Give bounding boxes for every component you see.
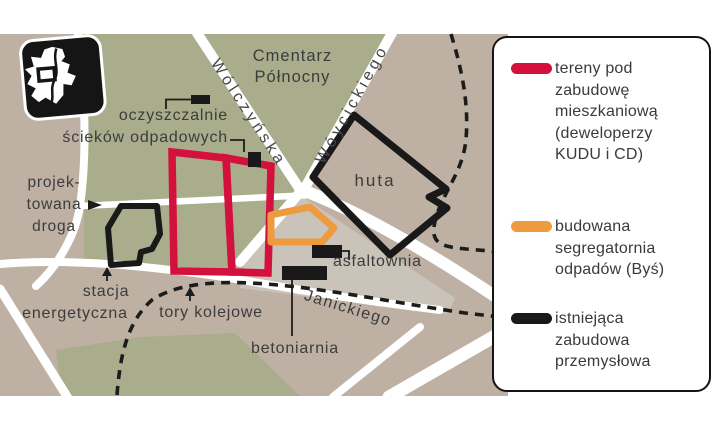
legend-text-waste-sorting: budowana segregatornia odpadów (Byś) — [555, 216, 664, 281]
legend-line: (deweloperzy — [555, 123, 658, 145]
legend-panel: tereny pod zabudowę mieszkaniową (dewelo… — [492, 36, 711, 392]
label-treatment-line2: ścieków odpadowych — [38, 127, 228, 148]
legend-item-industrial: istniejąca zabudowa przemysłowa — [511, 308, 651, 373]
map-infographic: Cmentarz Północny Wólczyńska Wóycickiego… — [0, 0, 720, 431]
legend-item-residential: tereny pod zabudowę mieszkaniową (dewelo… — [511, 58, 658, 166]
label-huta: huta — [345, 170, 405, 191]
label-asphalt-plant: asfaltownia — [333, 251, 443, 272]
legend-swatch-waste-sorting — [511, 221, 552, 232]
label-planned-road-line3: droga — [6, 216, 102, 238]
legend-line: segregatornia — [555, 238, 664, 260]
legend-line: mieszkaniową — [555, 101, 658, 123]
legend-line: zabudowa — [555, 330, 651, 352]
legend-line: przemysłowa — [555, 351, 651, 373]
label-cemetery-line1: Cmentarz — [230, 46, 355, 67]
legend-line: odpadów (Byś) — [555, 259, 664, 281]
district-marker — [38, 68, 55, 81]
legend-swatch-residential — [511, 63, 552, 74]
legend-text-industrial: istniejąca zabudowa przemysłowa — [555, 308, 651, 373]
label-concrete-plant: betoniarnia — [245, 338, 345, 359]
legend-line: KUDU i CD) — [555, 144, 658, 166]
legend-line: istniejąca — [555, 308, 651, 330]
legend-item-waste-sorting: budowana segregatornia odpadów (Byś) — [511, 216, 664, 281]
label-planned-road-line2: towana — [6, 194, 102, 216]
legend-line: tereny pod — [555, 58, 658, 80]
treatment-plant-bar — [191, 95, 210, 104]
label-cemetery: Cmentarz Północny — [230, 46, 355, 88]
label-treatment-line1: oczyszczalnie — [60, 105, 228, 126]
concrete-plant-bar — [282, 266, 327, 280]
label-railway: tory kolejowe — [150, 302, 272, 323]
label-planned-road: projek- towana droga — [6, 172, 102, 238]
label-power-line2: energetyczna — [10, 303, 140, 324]
label-cemetery-line2: Północny — [230, 67, 355, 88]
legend-line: budowana — [555, 216, 664, 238]
legend-swatch-industrial — [511, 313, 552, 324]
treatment-plant-square — [248, 152, 261, 167]
label-power-line1: stacja — [70, 281, 142, 302]
legend-text-residential: tereny pod zabudowę mieszkaniową (dewelo… — [555, 58, 658, 166]
legend-line: zabudowę — [555, 80, 658, 102]
label-planned-road-line1: projek- — [6, 172, 102, 194]
